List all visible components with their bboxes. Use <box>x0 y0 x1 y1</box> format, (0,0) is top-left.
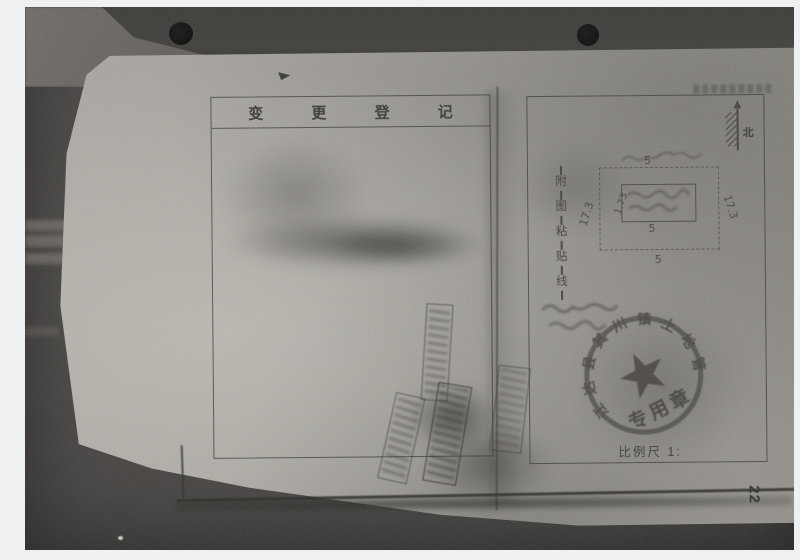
scale-label: 比例尺 1: <box>618 441 682 461</box>
photograph: 变 更 登 记 北 附 图 粘 <box>25 7 794 550</box>
paste-line-char: 线 <box>556 276 568 289</box>
paste-line-char: 图 <box>556 201 568 214</box>
page-title: 变 更 登 记 <box>226 100 475 123</box>
dimension-bottom: 5 <box>655 253 662 266</box>
gutter-shadow <box>485 91 523 506</box>
seal-bottom-text: 专用章 <box>624 383 696 434</box>
faint-corner-note <box>693 84 771 94</box>
page-number: 22 <box>746 485 763 504</box>
north-arrow: 北 <box>723 100 759 156</box>
north-arrow-hatching <box>725 112 736 146</box>
pen-tick-mark <box>278 71 290 80</box>
ledger-spread: 变 更 登 记 北 附 图 粘 <box>25 7 794 550</box>
paste-line-char: 粘 <box>556 226 568 239</box>
north-label: 北 <box>743 124 754 140</box>
north-arrow-head-icon <box>733 100 741 108</box>
dimension-inner: 5 <box>648 222 655 235</box>
handwriting-in-building <box>623 186 693 219</box>
paste-line-char: 附 <box>555 176 567 189</box>
faint-handwriting <box>619 149 714 166</box>
outer-border-left <box>181 445 185 499</box>
dust-speck <box>118 536 123 540</box>
paste-line-char: 贴 <box>556 251 568 264</box>
seal-star-icon <box>613 343 673 402</box>
title-row: 变 更 登 记 <box>211 95 489 128</box>
